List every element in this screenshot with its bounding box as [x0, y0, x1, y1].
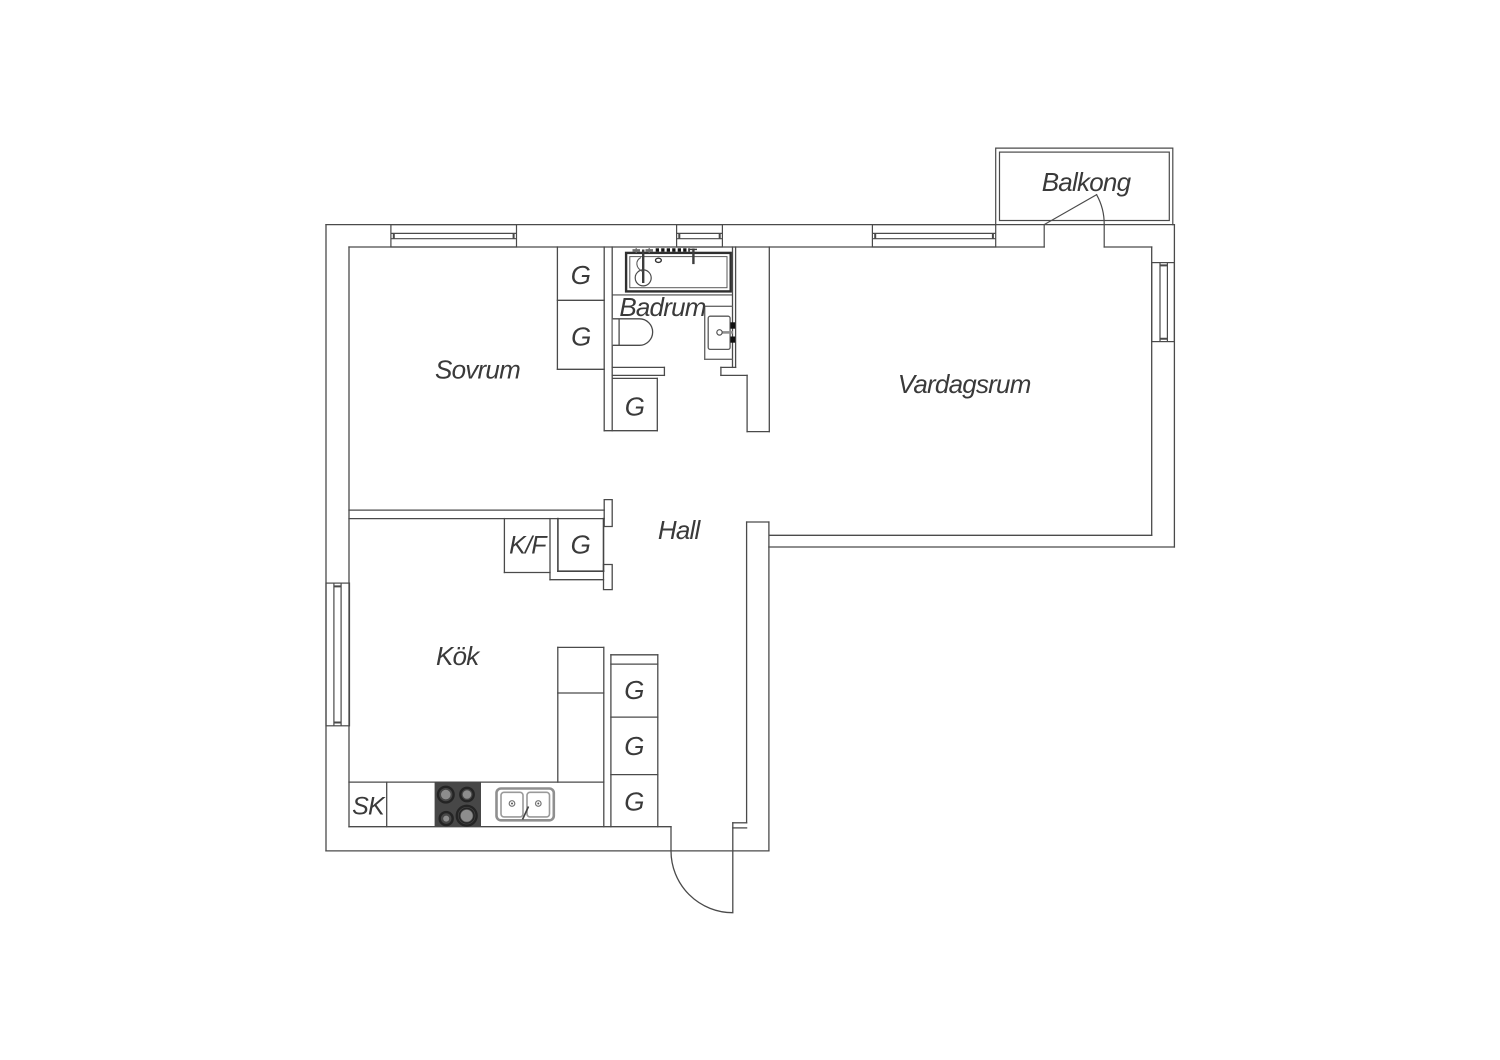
svg-text:G: G [571, 322, 591, 352]
svg-text:G: G [624, 675, 644, 705]
svg-text:Sovrum: Sovrum [435, 355, 520, 385]
svg-text:G: G [624, 786, 644, 816]
svg-text:K/F: K/F [509, 531, 548, 559]
svg-text:Hall: Hall [658, 515, 702, 545]
svg-text:SK: SK [352, 792, 386, 820]
svg-text:G: G [571, 529, 591, 559]
svg-text:Vardagsrum: Vardagsrum [898, 369, 1031, 399]
svg-text:G: G [625, 392, 645, 422]
svg-text:Badrum: Badrum [619, 292, 705, 322]
svg-text:Kök: Kök [436, 641, 481, 671]
svg-text:G: G [571, 260, 591, 290]
svg-text:G: G [624, 731, 644, 761]
svg-text:Balkong: Balkong [1042, 167, 1132, 197]
